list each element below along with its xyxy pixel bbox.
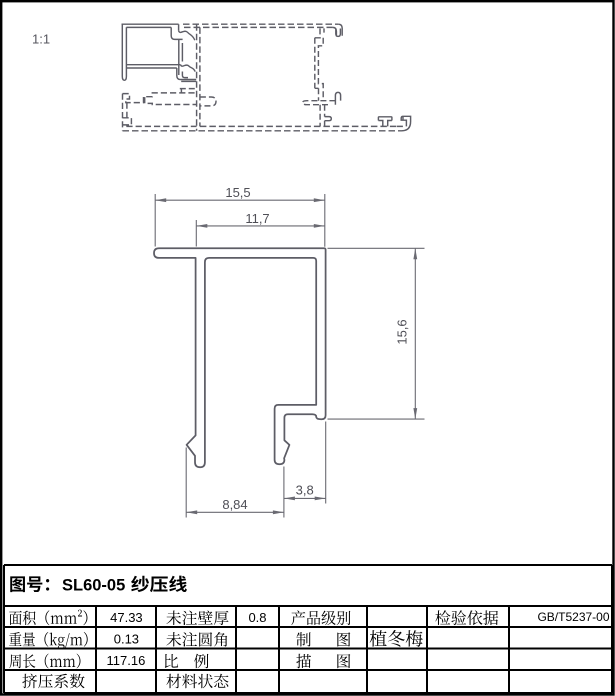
svg-text:SL60-05: SL60-05 [62, 577, 125, 595]
svg-text:8,84: 8,84 [222, 497, 247, 512]
svg-text:15,5: 15,5 [225, 185, 250, 200]
svg-text:47.33: 47.33 [110, 610, 143, 625]
svg-text:117.16: 117.16 [107, 653, 146, 668]
svg-text:0.8: 0.8 [248, 610, 266, 625]
svg-text:1:1: 1:1 [32, 32, 50, 47]
svg-text:3,8: 3,8 [296, 482, 314, 497]
svg-text:15,6: 15,6 [395, 319, 410, 344]
svg-text:0.13: 0.13 [114, 632, 139, 647]
svg-text:GB/T5237-00: GB/T5237-00 [537, 610, 609, 624]
svg-text:11,7: 11,7 [245, 211, 269, 226]
